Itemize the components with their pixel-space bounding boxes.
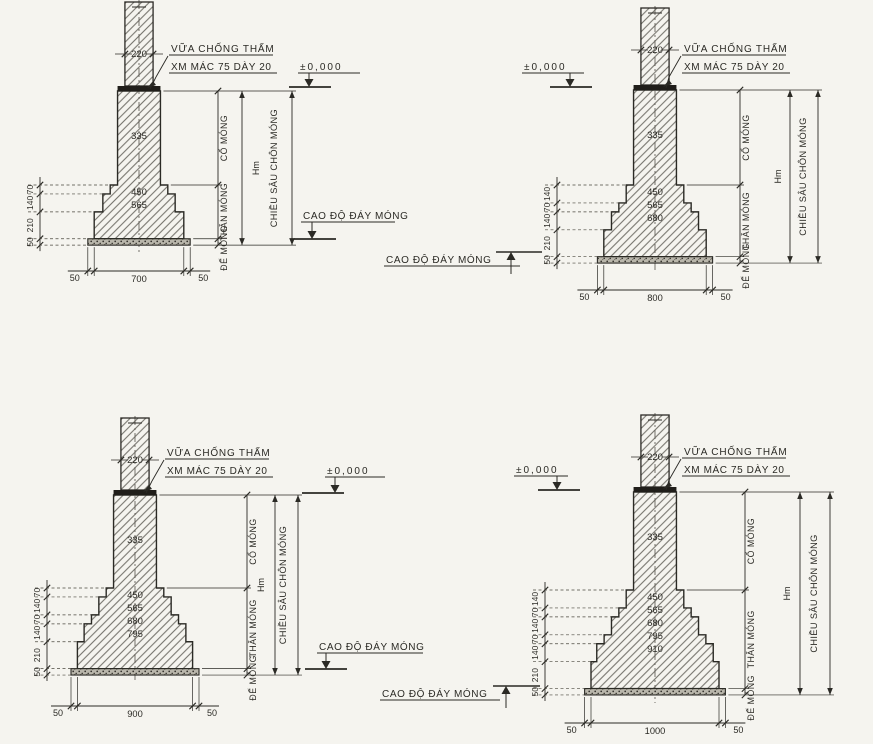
- footing-bottom-level-label: CAO ĐỘ ĐÁY MÓNG: [303, 209, 409, 222]
- step-width-label: 795: [647, 631, 663, 642]
- waterproof-note-line2: XM MÁC 75 DÀY 20: [684, 60, 785, 73]
- overhang-dim-label: 50: [721, 292, 731, 302]
- column: [641, 415, 669, 487]
- waterproof-note-line2: XM MÁC 75 DÀY 20: [684, 463, 785, 476]
- step-height-label: 210: [32, 648, 42, 662]
- depth-label: CHIỀU SÂU CHÔN MÓNG: [798, 117, 808, 235]
- neck-width-label: 335: [131, 131, 147, 142]
- step-width-label: 450: [131, 187, 147, 198]
- overhang-dim-label: 50: [207, 708, 217, 718]
- column-width-label: 220: [647, 45, 663, 56]
- waterproof-band: [118, 86, 161, 91]
- foundation-details-drawing: 22033545056570140210505070050CỔ MÓNGTHÂN…: [0, 0, 873, 744]
- step-height-label: 70: [32, 614, 42, 624]
- depth-label: CHIỀU SÂU CHÔN MÓNG: [809, 534, 819, 652]
- step-height-label: 210: [530, 668, 540, 682]
- step-width-label: 565: [127, 603, 143, 614]
- depth-symbol-label: Hm: [773, 170, 783, 184]
- waterproof-note-line1: VỮA CHỐNG THẤM: [684, 444, 787, 458]
- base-width-label: 700: [131, 274, 147, 284]
- section-label-neck: CỔ MÓNG: [740, 114, 751, 161]
- column-width-label: 220: [647, 452, 663, 463]
- section-label-pad: ĐẾ MÓNG: [746, 675, 756, 721]
- neck-width-label: 335: [647, 130, 663, 141]
- footing-bottom-level-label: CAO ĐỘ ĐÁY MÓNG: [386, 253, 492, 266]
- step-height-label: 70: [530, 634, 540, 644]
- waterproof-note-line1: VỮA CHỐNG THẤM: [171, 41, 274, 55]
- overhang-dim-label: 50: [198, 273, 208, 283]
- footing-bottom-level-label: CAO ĐỘ ĐÁY MÓNG: [382, 687, 488, 700]
- ground-level-label: ±0,000: [327, 466, 370, 477]
- waterproof-note-line1: VỮA CHỐNG THẤM: [167, 445, 270, 459]
- depth-symbol-label: Hm: [782, 586, 792, 600]
- step-height-label: 70: [25, 184, 35, 194]
- section-label-neck: CỔ MÓNG: [247, 518, 258, 565]
- step-height-label: 140: [542, 213, 552, 227]
- waterproof-note-line2: XM MÁC 75 DÀY 20: [167, 464, 268, 477]
- step-width-label: 450: [647, 187, 663, 198]
- section-label-neck: CỔ MÓNG: [745, 518, 756, 565]
- overhang-dim-label: 50: [567, 725, 577, 735]
- ground-level-label: ±0,000: [524, 62, 567, 73]
- base-width-label: 1000: [645, 726, 666, 736]
- step-width-label: 565: [647, 605, 663, 616]
- depth-label: CHIỀU SÂU CHÔN MÓNG: [278, 526, 288, 644]
- step-width-label: 910: [647, 644, 663, 655]
- base-width-label: 900: [127, 709, 143, 719]
- step-width-label: 795: [127, 629, 143, 640]
- step-width-label: 680: [127, 616, 143, 627]
- waterproof-band: [114, 490, 157, 495]
- bedding-strip: [88, 239, 190, 245]
- step-height-label: 140: [530, 618, 540, 632]
- depth-symbol-label: Hm: [256, 578, 266, 592]
- overhang-dim-label: 50: [70, 273, 80, 283]
- ground-level-label: ±0,000: [300, 62, 343, 73]
- section-label-pad: ĐẾ MÓNG: [219, 225, 229, 271]
- footing-bottom-level-label: CAO ĐỘ ĐÁY MÓNG: [319, 640, 425, 653]
- column: [125, 2, 153, 86]
- neck-width-label: 335: [647, 532, 663, 543]
- bedding-strip: [597, 257, 712, 263]
- bedding-strip: [71, 669, 199, 675]
- waterproof-note-line1: VỮA CHỐNG THẤM: [684, 41, 787, 55]
- section-label-pad: ĐẾ MÓNG: [741, 243, 751, 289]
- depth-label: CHIỀU SÂU CHÔN MÓNG: [269, 109, 279, 227]
- step-height-label: 140: [542, 187, 552, 201]
- waterproof-band: [634, 487, 677, 492]
- step-width-label: 565: [131, 200, 147, 211]
- step-height-label: 70: [530, 607, 540, 617]
- step-height-label: 210: [542, 236, 552, 250]
- step-height-label: 70: [32, 587, 42, 597]
- depth-symbol-label: Hm: [251, 161, 261, 175]
- step-height-label: 140: [530, 592, 540, 606]
- section-label-neck: CỔ MÓNG: [218, 115, 229, 162]
- step-width-label: 565: [647, 200, 663, 211]
- waterproof-band: [634, 85, 677, 90]
- overhang-dim-label: 50: [579, 292, 589, 302]
- step-width-label: 450: [127, 590, 143, 601]
- section-label-body: THÂN MÓNG: [746, 610, 756, 668]
- neck-width-label: 335: [127, 535, 143, 546]
- step-height-label: 140: [32, 599, 42, 613]
- overhang-dim-label: 50: [733, 725, 743, 735]
- column-width-label: 220: [131, 49, 147, 60]
- waterproof-note-line2: XM MÁC 75 DÀY 20: [171, 60, 272, 73]
- section-label-pad: ĐẾ MÓNG: [248, 655, 258, 701]
- base-width-label: 800: [647, 293, 663, 303]
- step-height-label: 210: [25, 218, 35, 232]
- step-height-label: 140: [530, 645, 540, 659]
- section-label-body: THÂN MÓNG: [248, 599, 258, 657]
- step-height-label: 70: [542, 202, 552, 212]
- step-width-label: 680: [647, 213, 663, 224]
- column-width-label: 220: [127, 455, 143, 466]
- section-label-body: THÂN MÓNG: [741, 192, 751, 250]
- column: [121, 418, 149, 490]
- step-height-label: 140: [25, 196, 35, 210]
- step-height-label: 140: [32, 625, 42, 639]
- step-width-label: 680: [647, 618, 663, 629]
- overhang-dim-label: 50: [53, 708, 63, 718]
- ground-level-label: ±0,000: [516, 465, 559, 476]
- drawing-sheet: 22033545056570140210505070050CỔ MÓNGTHÂN…: [0, 0, 873, 744]
- bedding-strip: [585, 689, 726, 695]
- step-width-label: 450: [647, 592, 663, 603]
